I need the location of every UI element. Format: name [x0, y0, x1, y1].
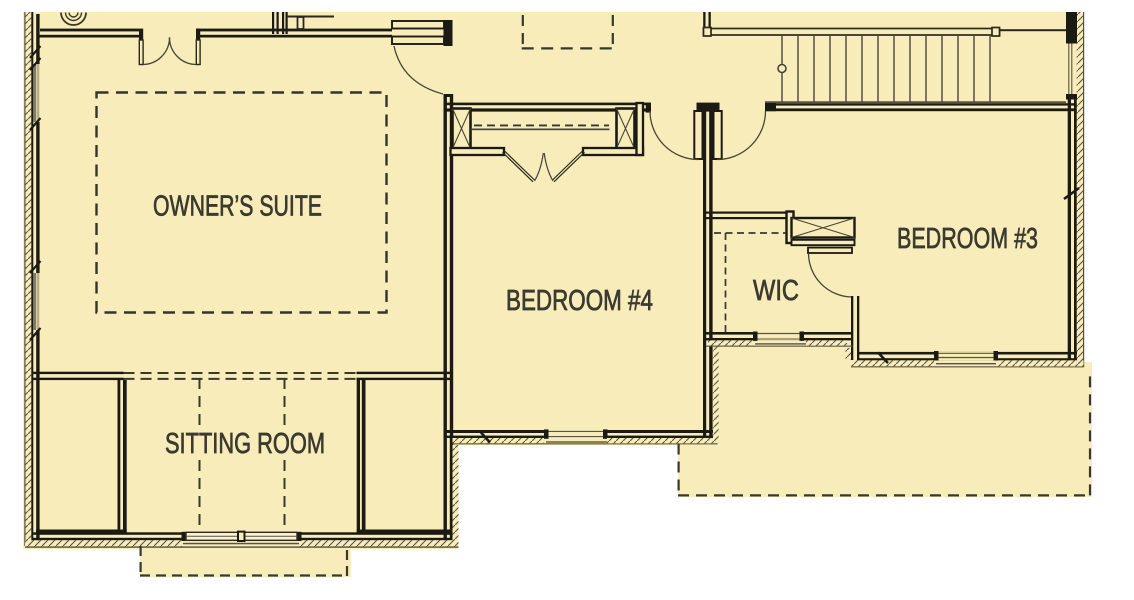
svg-text:BEDROOM #4: BEDROOM #4	[506, 285, 653, 317]
svg-text:OWNER’S SUITE: OWNER’S SUITE	[153, 191, 322, 223]
svg-text:BEDROOM #3: BEDROOM #3	[897, 223, 1038, 255]
svg-text:SITTING ROOM: SITTING ROOM	[165, 428, 325, 460]
svg-text:WIC: WIC	[753, 275, 799, 307]
